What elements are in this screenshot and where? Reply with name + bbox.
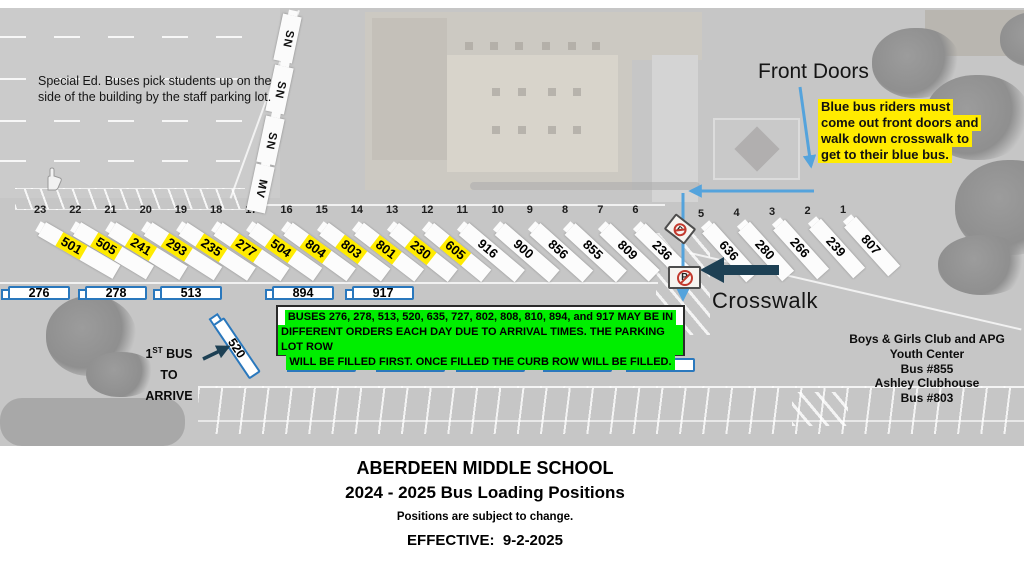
rooftop-unit: [573, 126, 581, 134]
stall-number: 19: [175, 204, 187, 216]
stall-number: 21: [104, 204, 116, 216]
no-parking-sign: P: [668, 266, 701, 289]
front-walkway: [652, 55, 698, 202]
parking-row-bus: 894: [272, 286, 334, 300]
stall-number: 5: [698, 208, 704, 220]
note-line: walk down crosswalk to: [818, 131, 972, 147]
stall-number: 16: [280, 204, 292, 216]
rooftop-unit: [492, 126, 500, 134]
stall-number: 13: [386, 204, 398, 216]
stall-number: 12: [421, 204, 433, 216]
rooftop-unit: [548, 88, 556, 96]
club-line: Boys & Girls Club and APG: [838, 332, 1016, 347]
ashley-line: Bus #803: [838, 391, 1016, 406]
club-line: Youth Center: [838, 347, 1016, 362]
stall-number: 1: [840, 204, 846, 216]
rooftop-unit: [568, 42, 576, 50]
bus-loading-map: 2350122505212412029319235182771750416804…: [0, 0, 1024, 570]
stall-number: 18: [210, 204, 222, 216]
parking-row-bus: 917: [352, 286, 414, 300]
note-line: DIFFERENT ORDERS EACH DAY DUE TO ARRIVAL…: [278, 325, 683, 355]
first-bus-label: 1ST BUS TO ARRIVE: [134, 340, 204, 407]
stall-number: 14: [351, 204, 363, 216]
note-line: come out front doors and: [818, 115, 981, 131]
stall-number: 15: [316, 204, 328, 216]
no-parking-letter: P: [681, 272, 688, 283]
stall-number: 2: [805, 205, 811, 217]
stall-number: 9: [527, 204, 533, 216]
loading-order-note: BUSES 276, 278, 513, 520, 635, 727, 802,…: [276, 305, 685, 356]
rooftop-unit: [548, 126, 556, 134]
rooftop-unit: [518, 88, 526, 96]
tree: [938, 235, 1024, 295]
note-line: get to their blue bus.: [818, 147, 952, 163]
no-parking-letter: P: [675, 224, 685, 234]
note-line: BUSES 276, 278, 513, 520, 635, 727, 802,…: [285, 310, 676, 325]
front-doors-label: Front Doors: [758, 60, 869, 84]
blue-bus-note: Blue bus riders must come out front door…: [818, 99, 988, 163]
note-line: Blue bus riders must: [818, 99, 953, 115]
stall-number: 8: [562, 204, 568, 216]
stall-number: 23: [34, 204, 46, 216]
rooftop-unit: [490, 42, 498, 50]
stall-number: 7: [597, 204, 603, 216]
club-line: Bus #855: [838, 362, 1016, 377]
special-ed-note: Special Ed. Buses pick students up on th…: [38, 74, 276, 105]
first-bus-line: ARRIVE: [134, 386, 204, 407]
parking-row-bus: 513: [160, 286, 222, 300]
disclaimer: Positions are subject to change.: [0, 511, 970, 523]
stall-number: 20: [140, 204, 152, 216]
first-bus-line: TO: [134, 365, 204, 386]
rooftop-unit: [515, 42, 523, 50]
note-line: WILL BE FILLED FIRST. ONCE FILLED THE CU…: [286, 355, 674, 370]
stall-number: 3: [769, 206, 775, 218]
rooftop-unit: [465, 42, 473, 50]
ashley-line: Ashley Clubhouse: [838, 376, 1016, 391]
stall-number: 4: [734, 207, 740, 219]
parking-row-bus: 276: [8, 286, 70, 300]
stall-number: 6: [632, 204, 638, 216]
rooftop-unit: [492, 88, 500, 96]
stall-number: 10: [492, 204, 504, 216]
title-block: ABERDEEN MIDDLE SCHOOL 2024 - 2025 Bus L…: [0, 452, 970, 549]
playground: [713, 118, 800, 180]
crosswalk-label: Crosswalk: [712, 288, 818, 314]
rooftop-unit: [518, 126, 526, 134]
ashley-label: Ashley Clubhouse Bus #803: [838, 376, 1016, 406]
stall-number: 11: [456, 204, 468, 216]
club-label: Boys & Girls Club and APG Youth Center B…: [838, 332, 1016, 377]
rooftop-unit: [573, 88, 581, 96]
stall-number: 22: [69, 204, 81, 216]
rooftop-unit: [542, 42, 550, 50]
school-title: ABERDEEN MIDDLE SCHOOL: [0, 458, 970, 479]
effective-date: EFFECTIVE: 9-2-2025: [0, 532, 970, 549]
rooftop-unit: [592, 42, 600, 50]
subtitle: 2024 - 2025 Bus Loading Positions: [0, 483, 970, 503]
parking-row-bus: 278: [85, 286, 147, 300]
